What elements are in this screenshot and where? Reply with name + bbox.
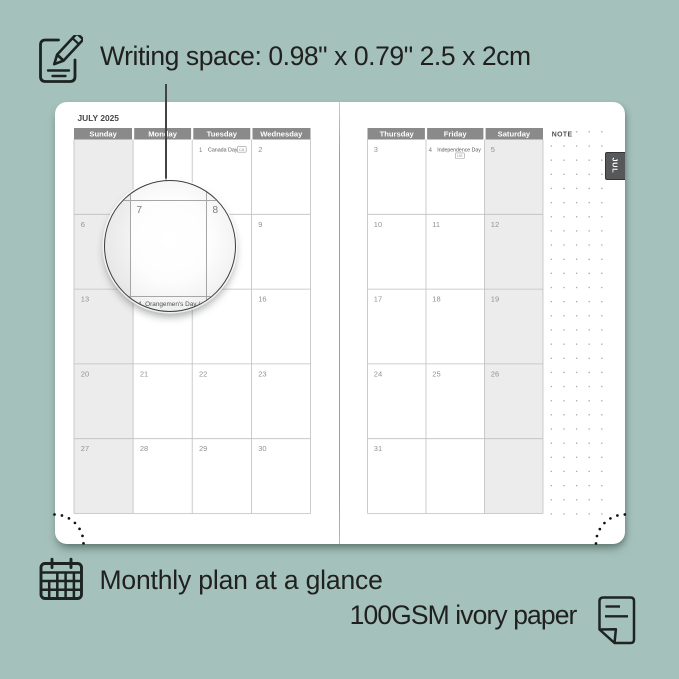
svg-text:US: US bbox=[457, 153, 463, 158]
svg-text:3: 3 bbox=[374, 145, 378, 154]
svg-text:29: 29 bbox=[199, 444, 207, 453]
svg-text:5: 5 bbox=[491, 145, 495, 154]
svg-text:Thursday: Thursday bbox=[380, 130, 415, 139]
svg-text:9: 9 bbox=[258, 220, 262, 229]
svg-text:31: 31 bbox=[374, 444, 382, 453]
svg-text:10: 10 bbox=[374, 220, 382, 229]
svg-text:26: 26 bbox=[491, 369, 499, 378]
svg-text:22: 22 bbox=[199, 369, 207, 378]
svg-text:17: 17 bbox=[374, 295, 382, 304]
svg-text:Sunday: Sunday bbox=[89, 130, 117, 139]
svg-text:6: 6 bbox=[81, 220, 85, 229]
svg-text:1: 1 bbox=[199, 148, 203, 154]
svg-text:CA: CA bbox=[239, 147, 245, 152]
svg-text:Friday: Friday bbox=[444, 130, 468, 139]
svg-text:13: 13 bbox=[81, 295, 89, 304]
svg-text:30: 30 bbox=[258, 444, 266, 453]
svg-text:Tuesday: Tuesday bbox=[207, 130, 238, 139]
svg-text:27: 27 bbox=[81, 444, 89, 453]
svg-text:23: 23 bbox=[258, 369, 266, 378]
svg-text:24: 24 bbox=[374, 369, 382, 378]
svg-text:2: 2 bbox=[258, 145, 262, 154]
svg-text:Canada Day: Canada Day bbox=[208, 148, 238, 154]
svg-text:20: 20 bbox=[81, 369, 89, 378]
svg-text:19: 19 bbox=[491, 295, 499, 304]
svg-text:16: 16 bbox=[258, 295, 266, 304]
svg-text:NOTE: NOTE bbox=[552, 132, 573, 139]
svg-text:11: 11 bbox=[432, 220, 440, 229]
svg-text:4: 4 bbox=[429, 148, 433, 154]
svg-text:25: 25 bbox=[432, 369, 440, 378]
svg-text:12: 12 bbox=[491, 220, 499, 229]
svg-text:28: 28 bbox=[140, 444, 148, 453]
svg-text:Saturday: Saturday bbox=[498, 130, 531, 139]
svg-text:21: 21 bbox=[140, 369, 148, 378]
svg-text:18: 18 bbox=[432, 295, 440, 304]
svg-text:Wednesday: Wednesday bbox=[260, 130, 303, 139]
svg-text:Monday: Monday bbox=[148, 130, 177, 139]
